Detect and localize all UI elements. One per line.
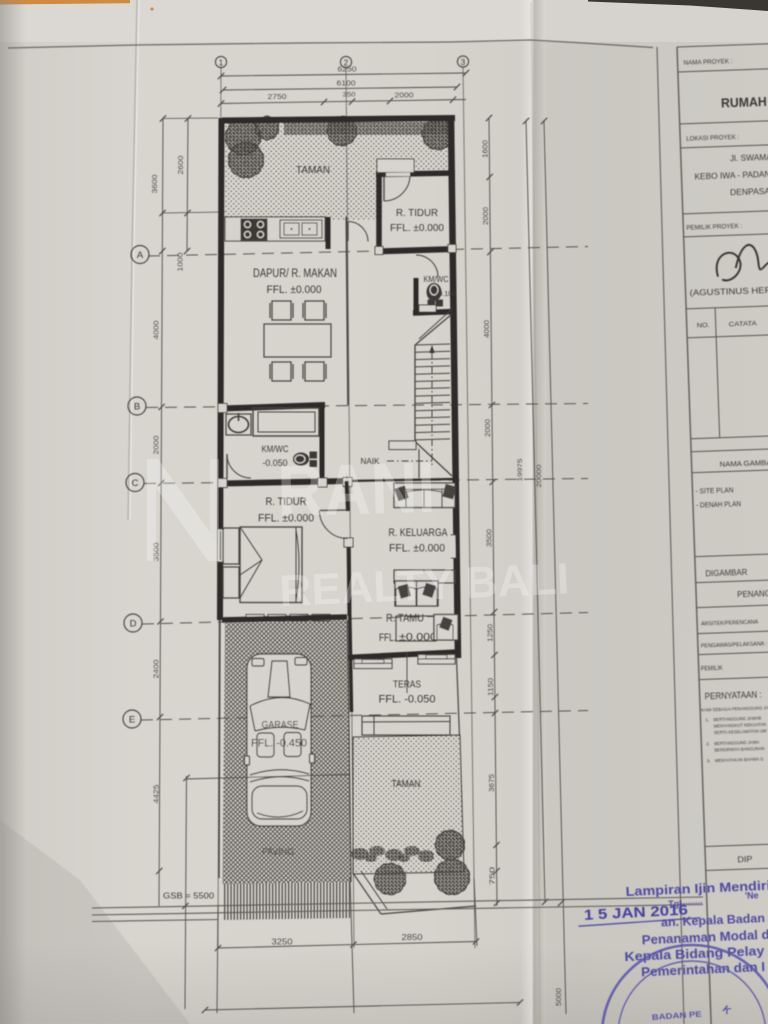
svg-text:1250: 1250 — [487, 624, 494, 642]
svg-text:TERAS: TERAS — [393, 679, 421, 691]
svg-text:1150: 1150 — [488, 678, 495, 696]
svg-text:1: 1 — [219, 59, 224, 68]
svg-text:FFL. ±0.000: FFL. ±0.000 — [390, 222, 444, 234]
svg-text:2000: 2000 — [395, 91, 414, 100]
svg-text:CATATA: CATATA — [729, 320, 758, 328]
svg-text:4000: 4000 — [152, 321, 161, 340]
svg-text:3500: 3500 — [486, 529, 493, 547]
svg-text:2750: 2750 — [268, 92, 287, 101]
svg-text:3600: 3600 — [150, 175, 159, 194]
svg-text:GSB = 5500: GSB = 5500 — [163, 891, 214, 901]
svg-text:RUMAH TI: RUMAH TI — [721, 93, 768, 110]
svg-text:2000: 2000 — [152, 436, 161, 455]
svg-text:R. TIDUR: R. TIDUR — [396, 207, 438, 219]
svg-text:FFL. -0.450: FFL. -0.450 — [251, 738, 307, 750]
svg-text:PAVING: PAVING — [262, 847, 294, 858]
svg-text:2400: 2400 — [152, 660, 161, 679]
svg-text:B: B — [134, 402, 140, 413]
svg-text:FFL. -0.050: FFL. -0.050 — [379, 694, 436, 706]
svg-text:NO.: NO. — [697, 322, 710, 329]
svg-text:TAMAN: TAMAN — [296, 164, 330, 176]
svg-text:2000: 2000 — [483, 207, 490, 225]
svg-text:TAMAN: TAMAN — [392, 778, 421, 790]
svg-text:350: 350 — [343, 92, 356, 99]
svg-text:1.: 1. — [705, 717, 709, 722]
svg-text:PENANGG: PENANGG — [737, 588, 768, 599]
svg-text:GARASE: GARASE — [262, 720, 299, 731]
svg-text:3.: 3. — [707, 758, 711, 763]
svg-text:2000: 2000 — [485, 419, 492, 437]
svg-text:- SITE PLAN: - SITE PLAN — [695, 485, 733, 495]
svg-text:FFL.: FFL. — [379, 632, 396, 644]
svg-text:5000: 5000 — [556, 988, 563, 1006]
svg-text:- DENAH PLAN: - DENAH PLAN — [696, 499, 741, 510]
svg-text:6100: 6100 — [337, 79, 356, 88]
svg-text:2600: 2600 — [176, 156, 185, 175]
svg-text:20000: 20000 — [536, 464, 543, 487]
svg-text:C: C — [132, 478, 139, 489]
svg-text:FFL. ±0.000: FFL. ±0.000 — [389, 543, 445, 555]
svg-text:4000: 4000 — [484, 320, 491, 338]
svg-text:-0.100: -0.100 — [436, 291, 456, 298]
svg-text:DAPUR/ R. MAKAN: DAPUR/ R. MAKAN — [253, 268, 337, 280]
svg-text:3250: 3250 — [272, 938, 294, 947]
svg-text:E: E — [129, 715, 135, 726]
svg-text:'Ne: 'Ne — [745, 890, 759, 901]
svg-text:2.: 2. — [706, 741, 710, 746]
svg-text:±0.000: ±0.000 — [399, 632, 437, 644]
svg-text:PERNYATAAN :: PERNYATAAN : — [705, 689, 762, 701]
svg-text:PEMILIK: PEMILIK — [701, 666, 723, 673]
svg-text:R. TAMU: R. TAMU — [386, 613, 424, 625]
svg-text:3: 3 — [461, 58, 466, 67]
svg-text:KM/WC: KM/WC — [424, 274, 449, 284]
svg-text:FFL. ±0.000: FFL. ±0.000 — [267, 284, 322, 296]
svg-text:1000: 1000 — [176, 253, 185, 272]
svg-text:1600: 1600 — [482, 140, 489, 158]
svg-text:19975: 19975 — [517, 458, 524, 481]
svg-text:D: D — [130, 619, 137, 630]
svg-text:3675: 3675 — [489, 774, 496, 792]
svg-text:6250: 6250 — [338, 65, 357, 74]
svg-text:DIGAMBAR: DIGAMBAR — [705, 567, 747, 578]
svg-text:750: 750 — [490, 867, 497, 885]
svg-text:4425: 4425 — [152, 785, 161, 804]
svg-text:DENPASA: DENPASA — [730, 186, 768, 197]
svg-text:Jl. SWAMAN: Jl. SWAMAN — [730, 152, 768, 164]
svg-text:A: A — [137, 250, 144, 261]
svg-text:2850: 2850 — [402, 933, 424, 942]
svg-text:RANI: RANI — [276, 448, 436, 532]
svg-text:DIP: DIP — [737, 854, 753, 865]
